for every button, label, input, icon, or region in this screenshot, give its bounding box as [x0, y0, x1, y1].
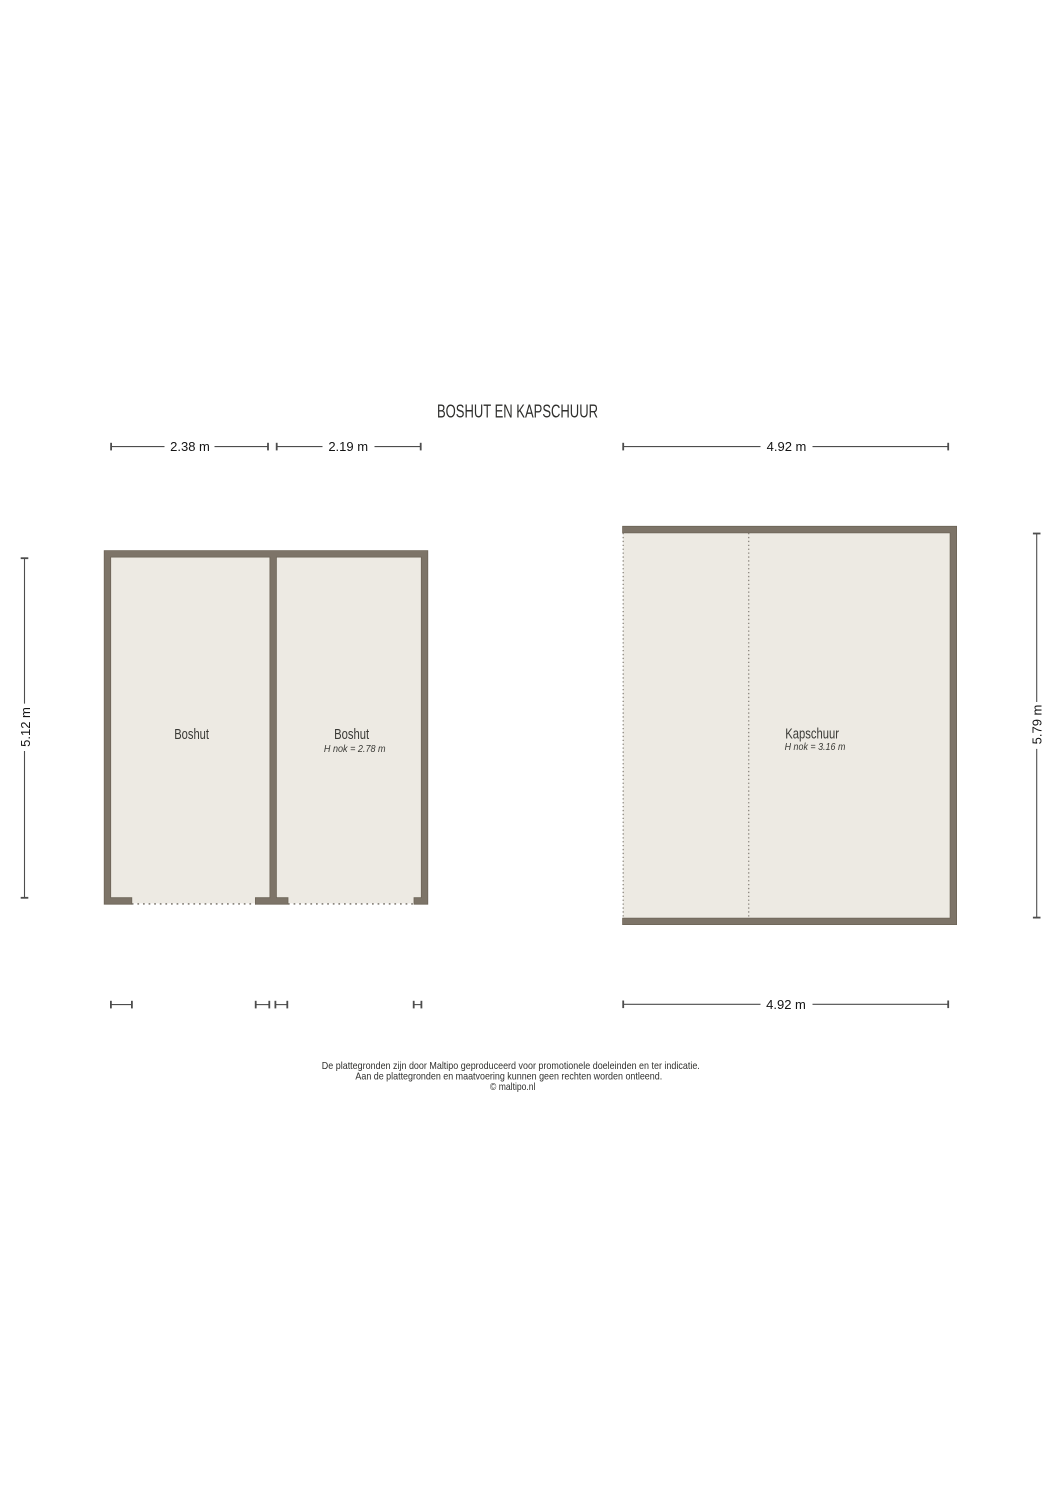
- svg-text:H nok = 3.16 m: H nok = 3.16 m: [785, 742, 846, 753]
- svg-text:2.38 m: 2.38 m: [170, 439, 210, 454]
- svg-text:Kapschuur: Kapschuur: [785, 727, 839, 743]
- svg-text:H nok = 2.78 m: H nok = 2.78 m: [324, 744, 386, 755]
- svg-text:BOSHUT EN KAPSCHUUR: BOSHUT EN KAPSCHUUR: [437, 400, 598, 421]
- svg-text:© maltipo.nl: © maltipo.nl: [490, 1081, 536, 1093]
- svg-text:Boshut: Boshut: [334, 727, 369, 743]
- svg-text:5.79 m: 5.79 m: [1030, 705, 1045, 745]
- svg-text:2.19 m: 2.19 m: [328, 439, 368, 454]
- svg-text:4.92 m: 4.92 m: [767, 439, 807, 454]
- svg-text:5.12 m: 5.12 m: [18, 707, 33, 747]
- svg-text:Boshut: Boshut: [174, 727, 209, 743]
- svg-text:4.92 m: 4.92 m: [766, 997, 806, 1012]
